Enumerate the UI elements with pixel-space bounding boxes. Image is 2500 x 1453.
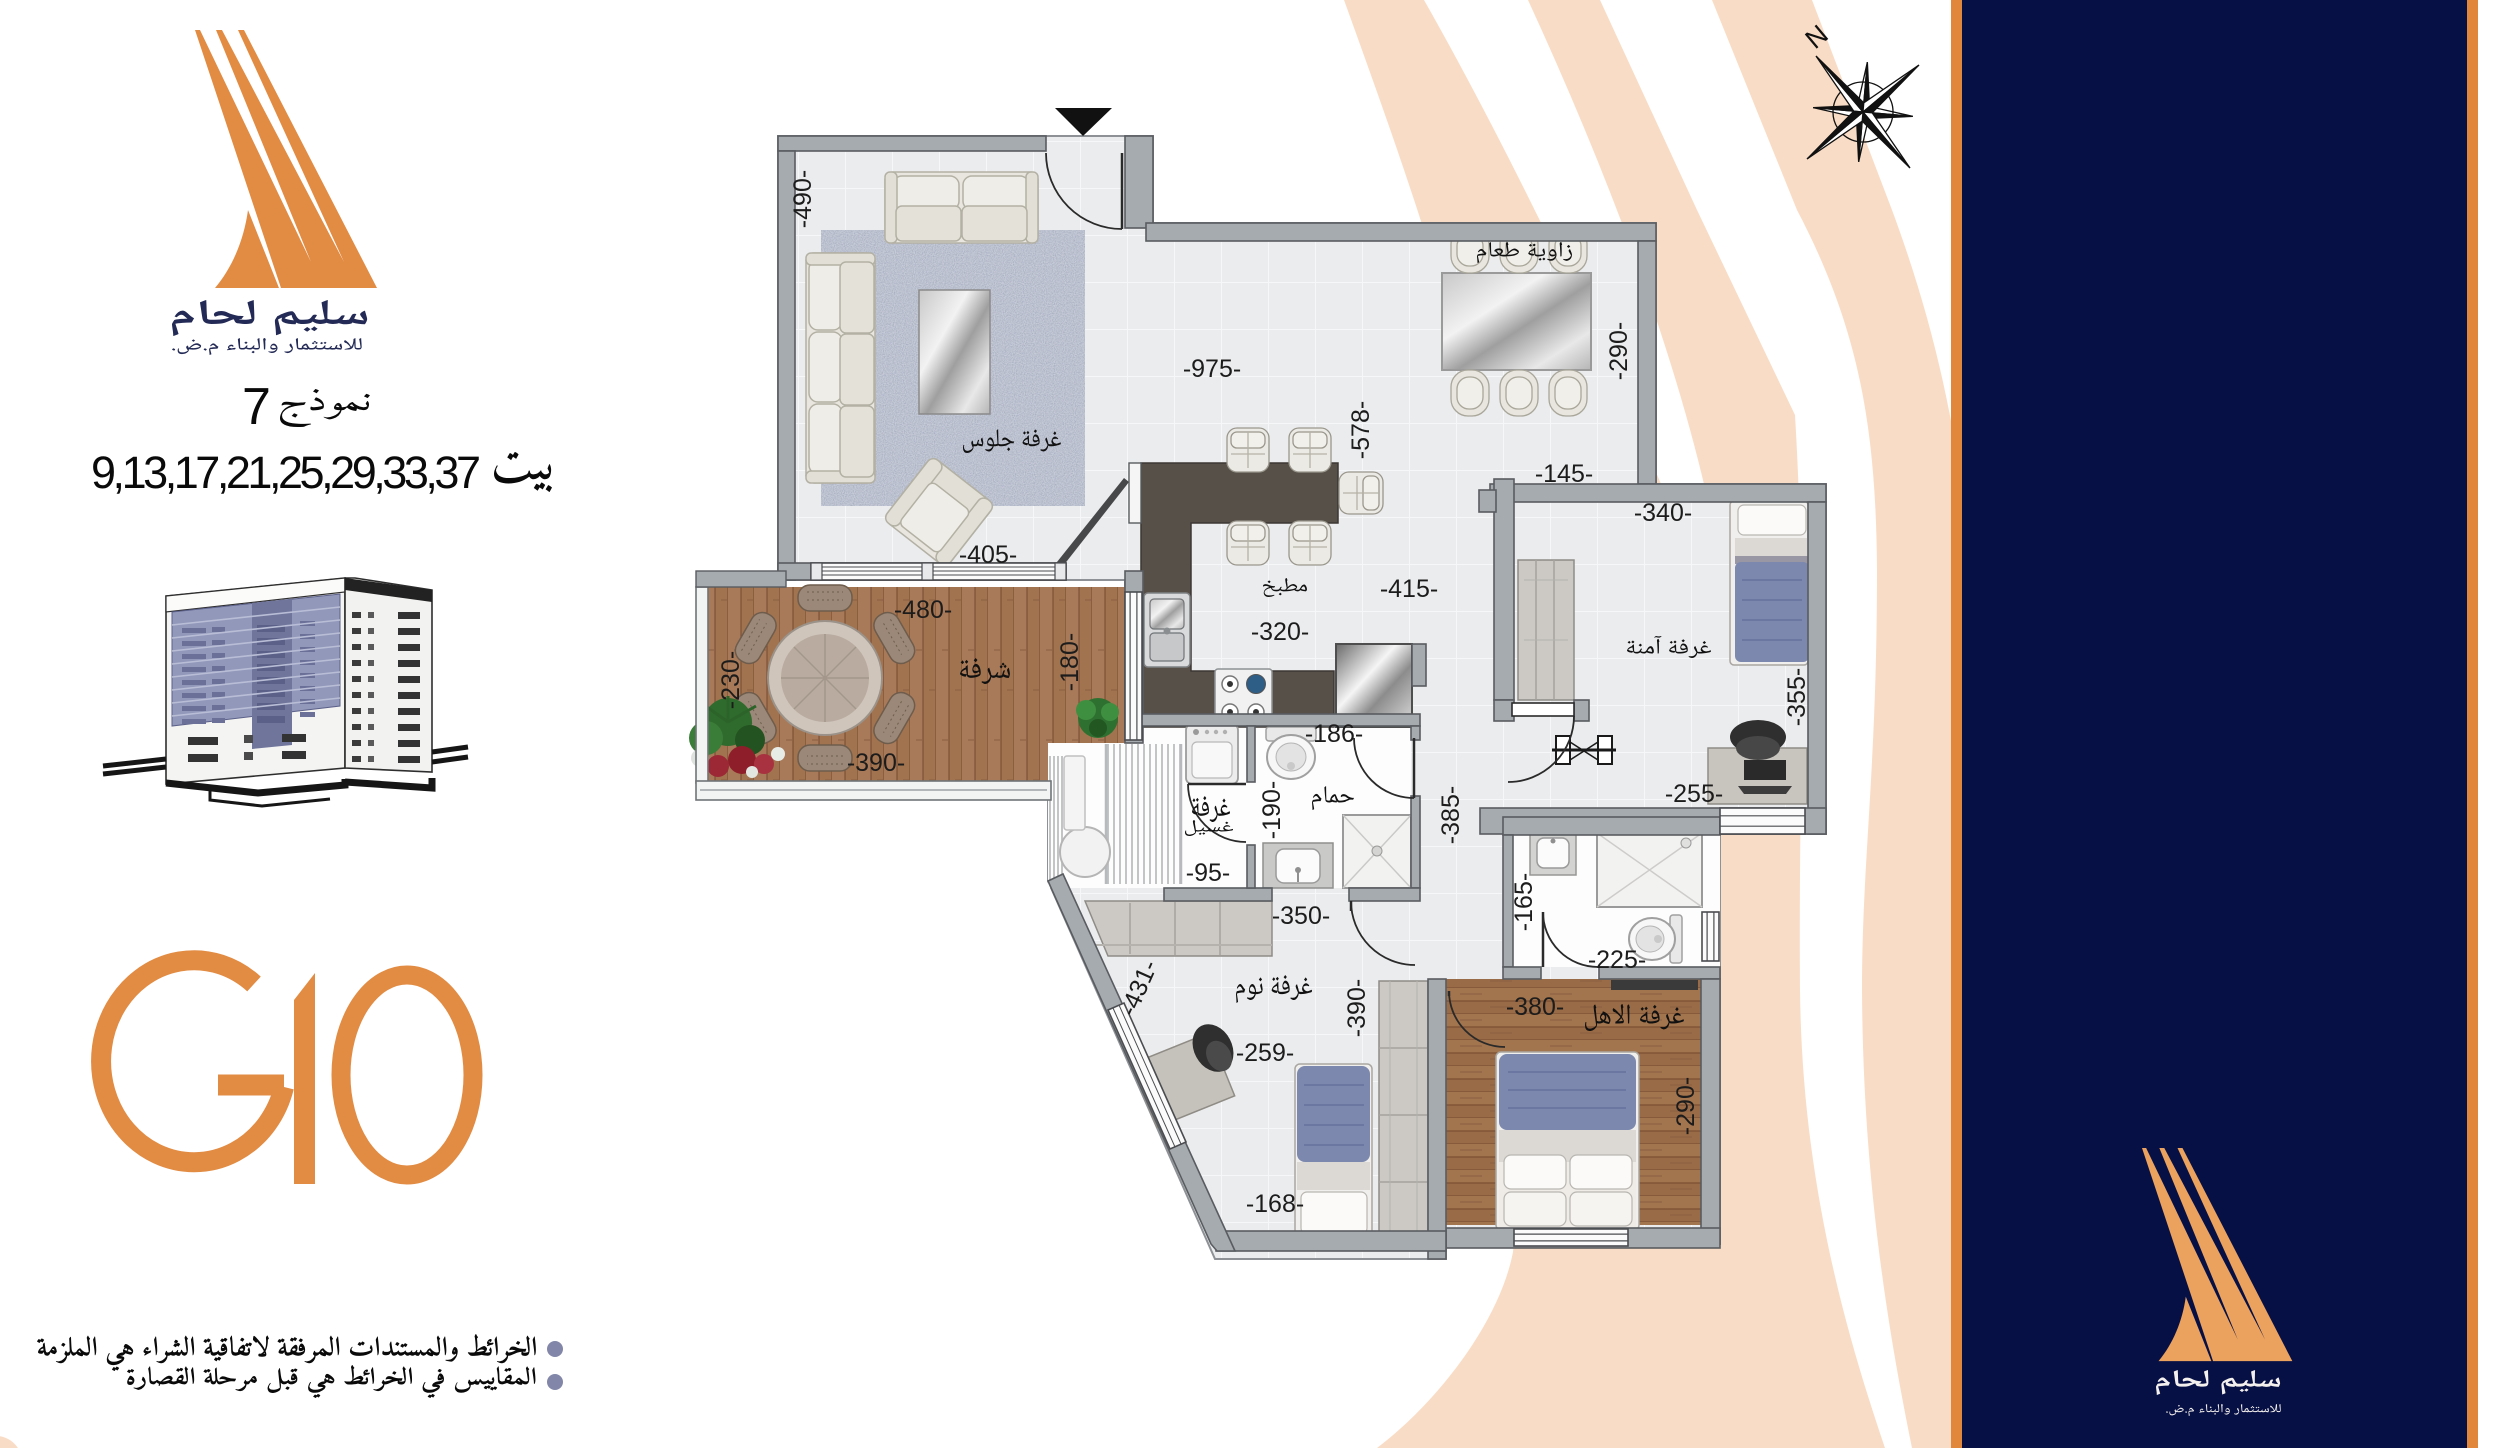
svg-text:-255-: -255- [1665, 780, 1723, 808]
svg-text:-168-: -168- [1246, 1190, 1304, 1218]
svg-text:-290-: -290- [1605, 322, 1633, 380]
svg-text:-385-: -385- [1437, 786, 1465, 844]
svg-text:-290-: -290- [1672, 1077, 1700, 1135]
svg-text:9,13,17,21,25,29,33,37: 9,13,17,21,25,29,33,37 [91, 447, 481, 498]
svg-text:-145-: -145- [1535, 460, 1593, 488]
svg-text:-95-: -95- [1186, 859, 1230, 887]
svg-text:-180-: -180- [1056, 633, 1084, 691]
svg-text:-230-: -230- [717, 651, 745, 709]
svg-text:-390-: -390- [847, 749, 905, 777]
svg-text:-355-: -355- [1783, 668, 1811, 726]
svg-text:-405-: -405- [959, 541, 1017, 569]
svg-text:-225-: -225- [1588, 946, 1646, 974]
svg-text:-390-: -390- [1343, 979, 1371, 1037]
svg-text:-578-: -578- [1347, 401, 1375, 459]
svg-text:-259-: -259- [1236, 1039, 1294, 1067]
svg-text:-165-: -165- [1510, 873, 1538, 931]
svg-text:-415-: -415- [1380, 575, 1438, 603]
svg-text:-490-: -490- [789, 170, 817, 228]
svg-text:-380-: -380- [1506, 993, 1564, 1021]
svg-text:-340-: -340- [1634, 499, 1692, 527]
svg-text:-975-: -975- [1183, 355, 1241, 383]
svg-text:-320-: -320- [1251, 618, 1309, 646]
svg-text:-350-: -350- [1272, 902, 1330, 930]
svg-text:-190-: -190- [1258, 781, 1286, 839]
svg-text:-186-: -186- [1305, 720, 1363, 748]
svg-text:-480-: -480- [894, 596, 952, 624]
svg-text:7: 7 [242, 378, 271, 436]
